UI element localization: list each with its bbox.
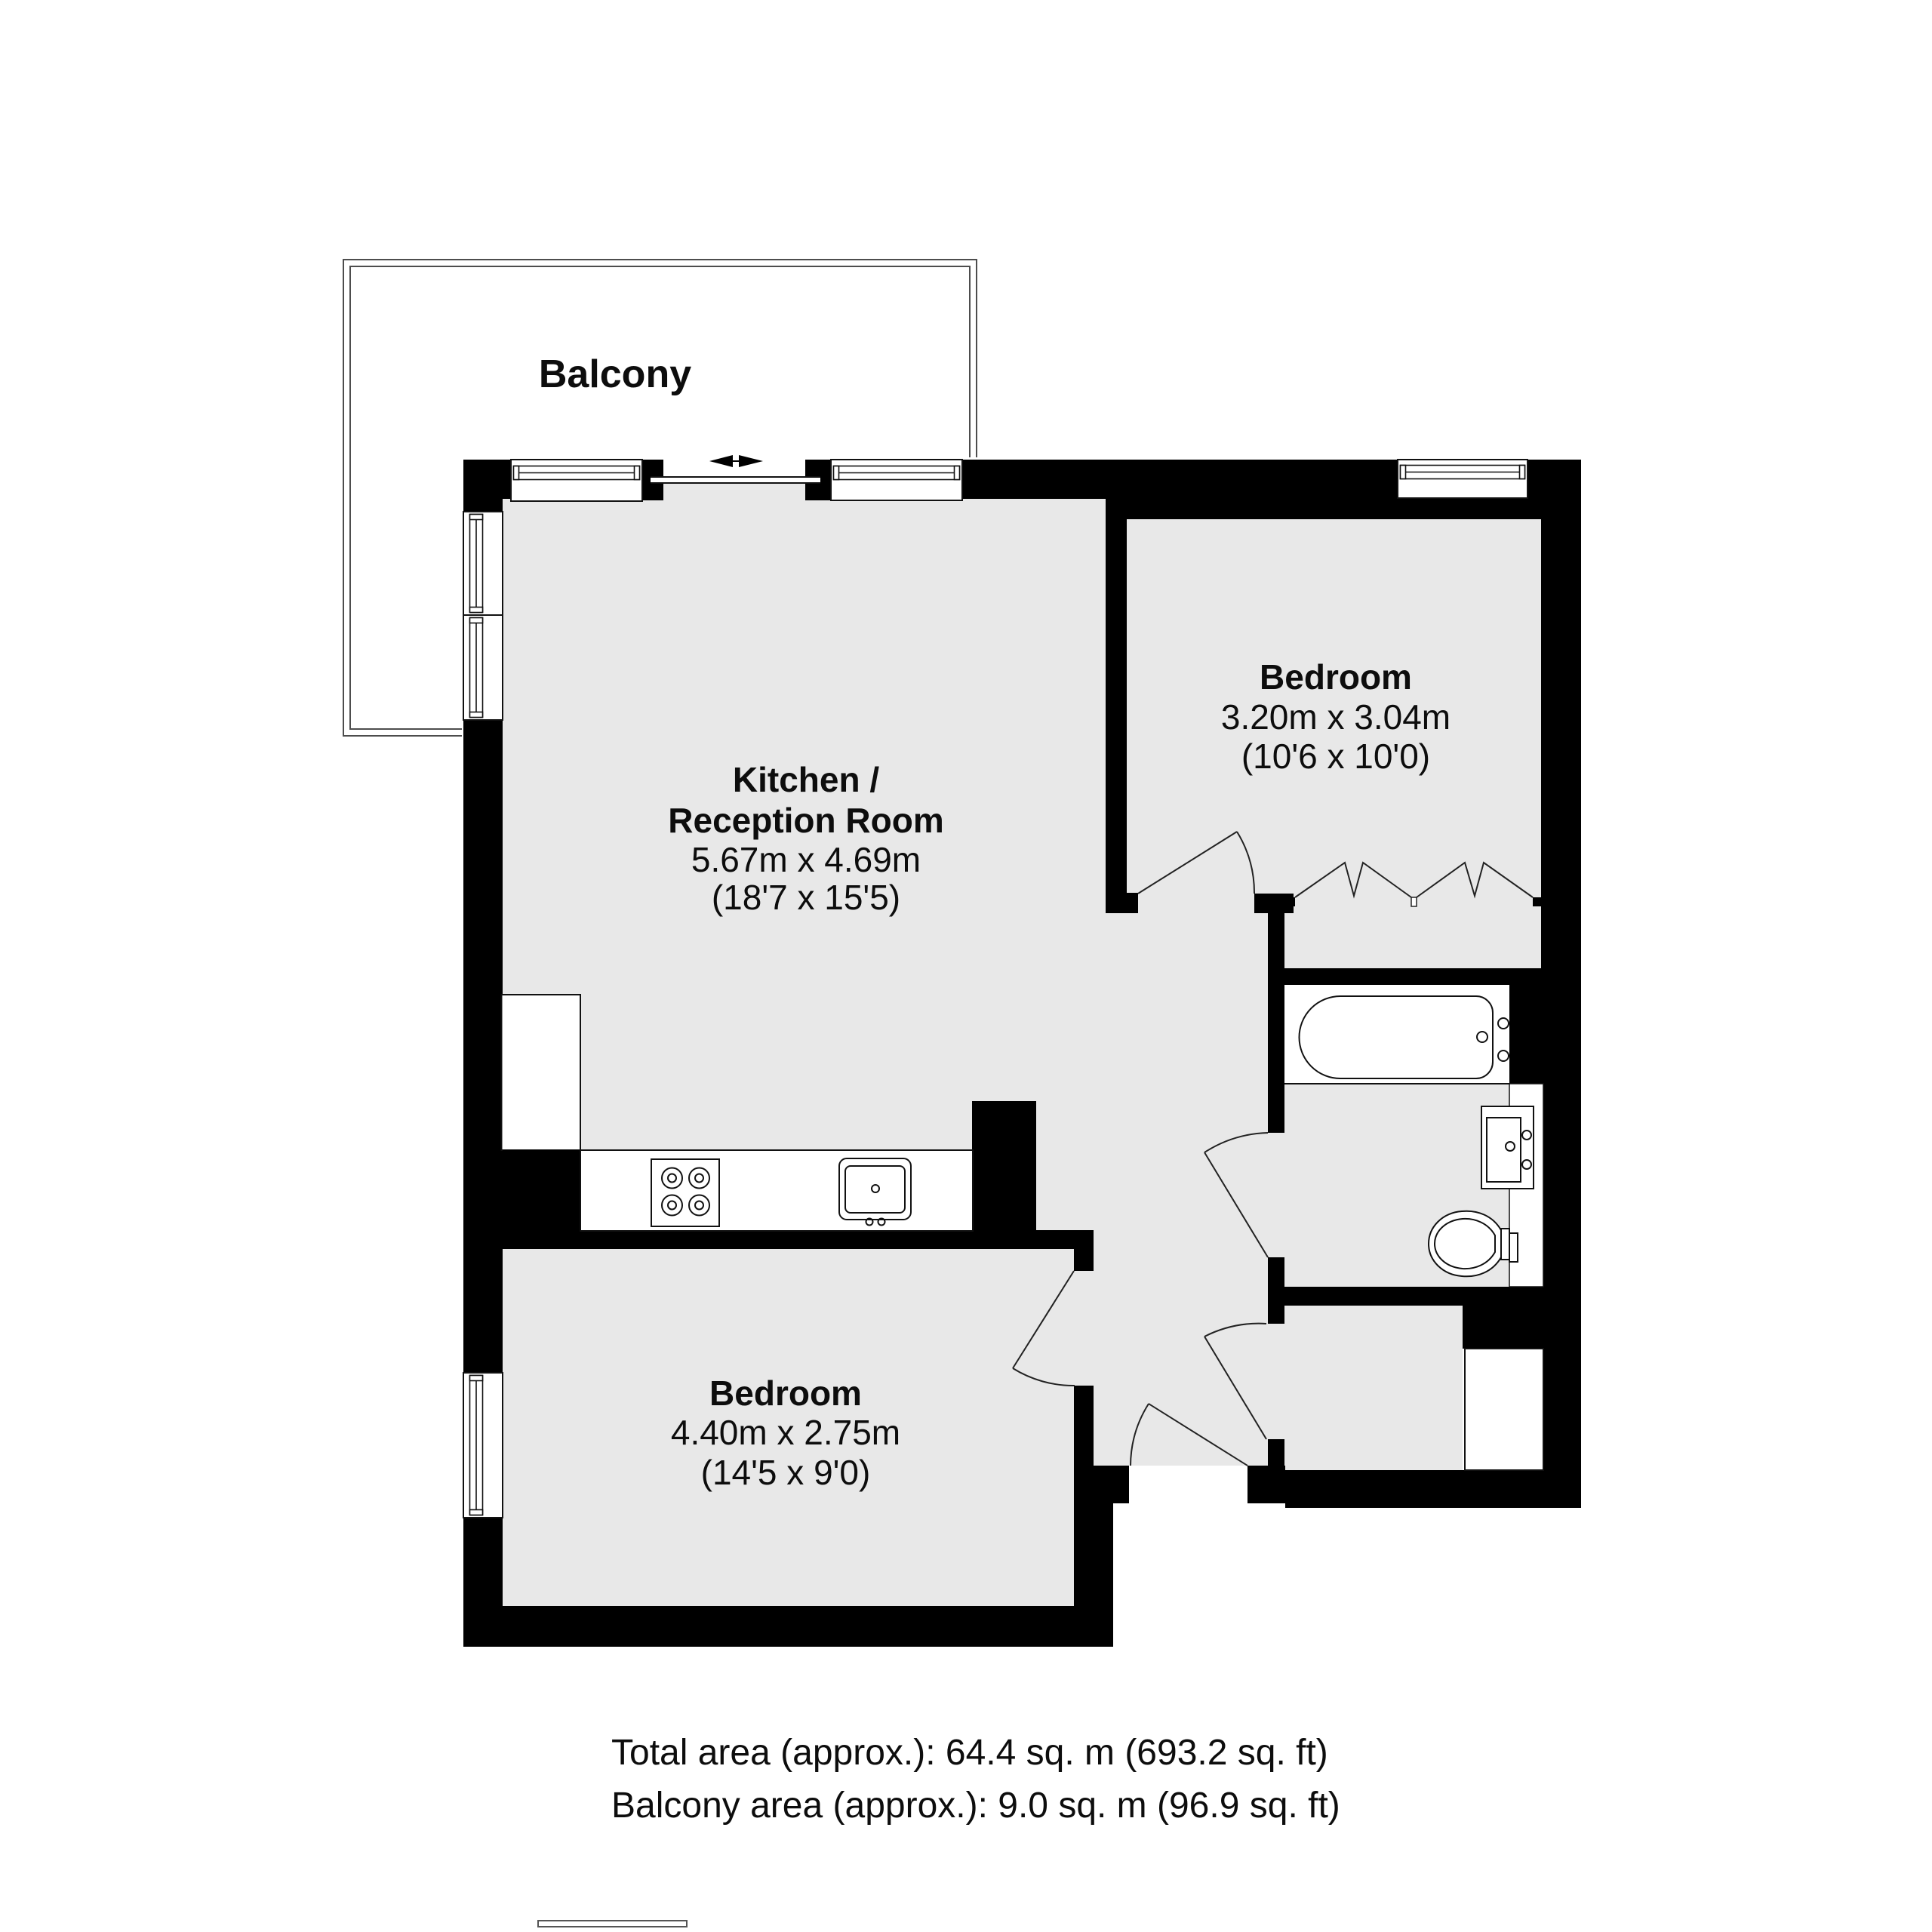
svg-text:4.40m x 2.75m: 4.40m x 2.75m <box>671 1413 900 1452</box>
svg-text:Balcony: Balcony <box>539 352 691 396</box>
svg-text:Bedroom: Bedroom <box>1260 657 1412 697</box>
svg-text:(10'6 x 10'0): (10'6 x 10'0) <box>1241 737 1430 776</box>
svg-text:(14'5 x 9'0): (14'5 x 9'0) <box>701 1453 871 1492</box>
svg-text:Reception Room: Reception Room <box>668 801 943 840</box>
svg-text:(18'7 x 15'5): (18'7 x 15'5) <box>712 878 900 917</box>
svg-text:3.20m x 3.04m: 3.20m x 3.04m <box>1221 697 1451 737</box>
svg-text:5.67m x 4.69m: 5.67m x 4.69m <box>691 840 921 879</box>
svg-text:Total area (approx.): 64.4 sq.: Total area (approx.): 64.4 sq. m (693.2 … <box>611 1733 1328 1773</box>
svg-text:Balcony area (approx.): 9.0 sq: Balcony area (approx.): 9.0 sq. m (96.9 … <box>611 1786 1340 1826</box>
svg-text:Kitchen /: Kitchen / <box>733 760 879 799</box>
svg-text:Bedroom: Bedroom <box>709 1374 862 1413</box>
